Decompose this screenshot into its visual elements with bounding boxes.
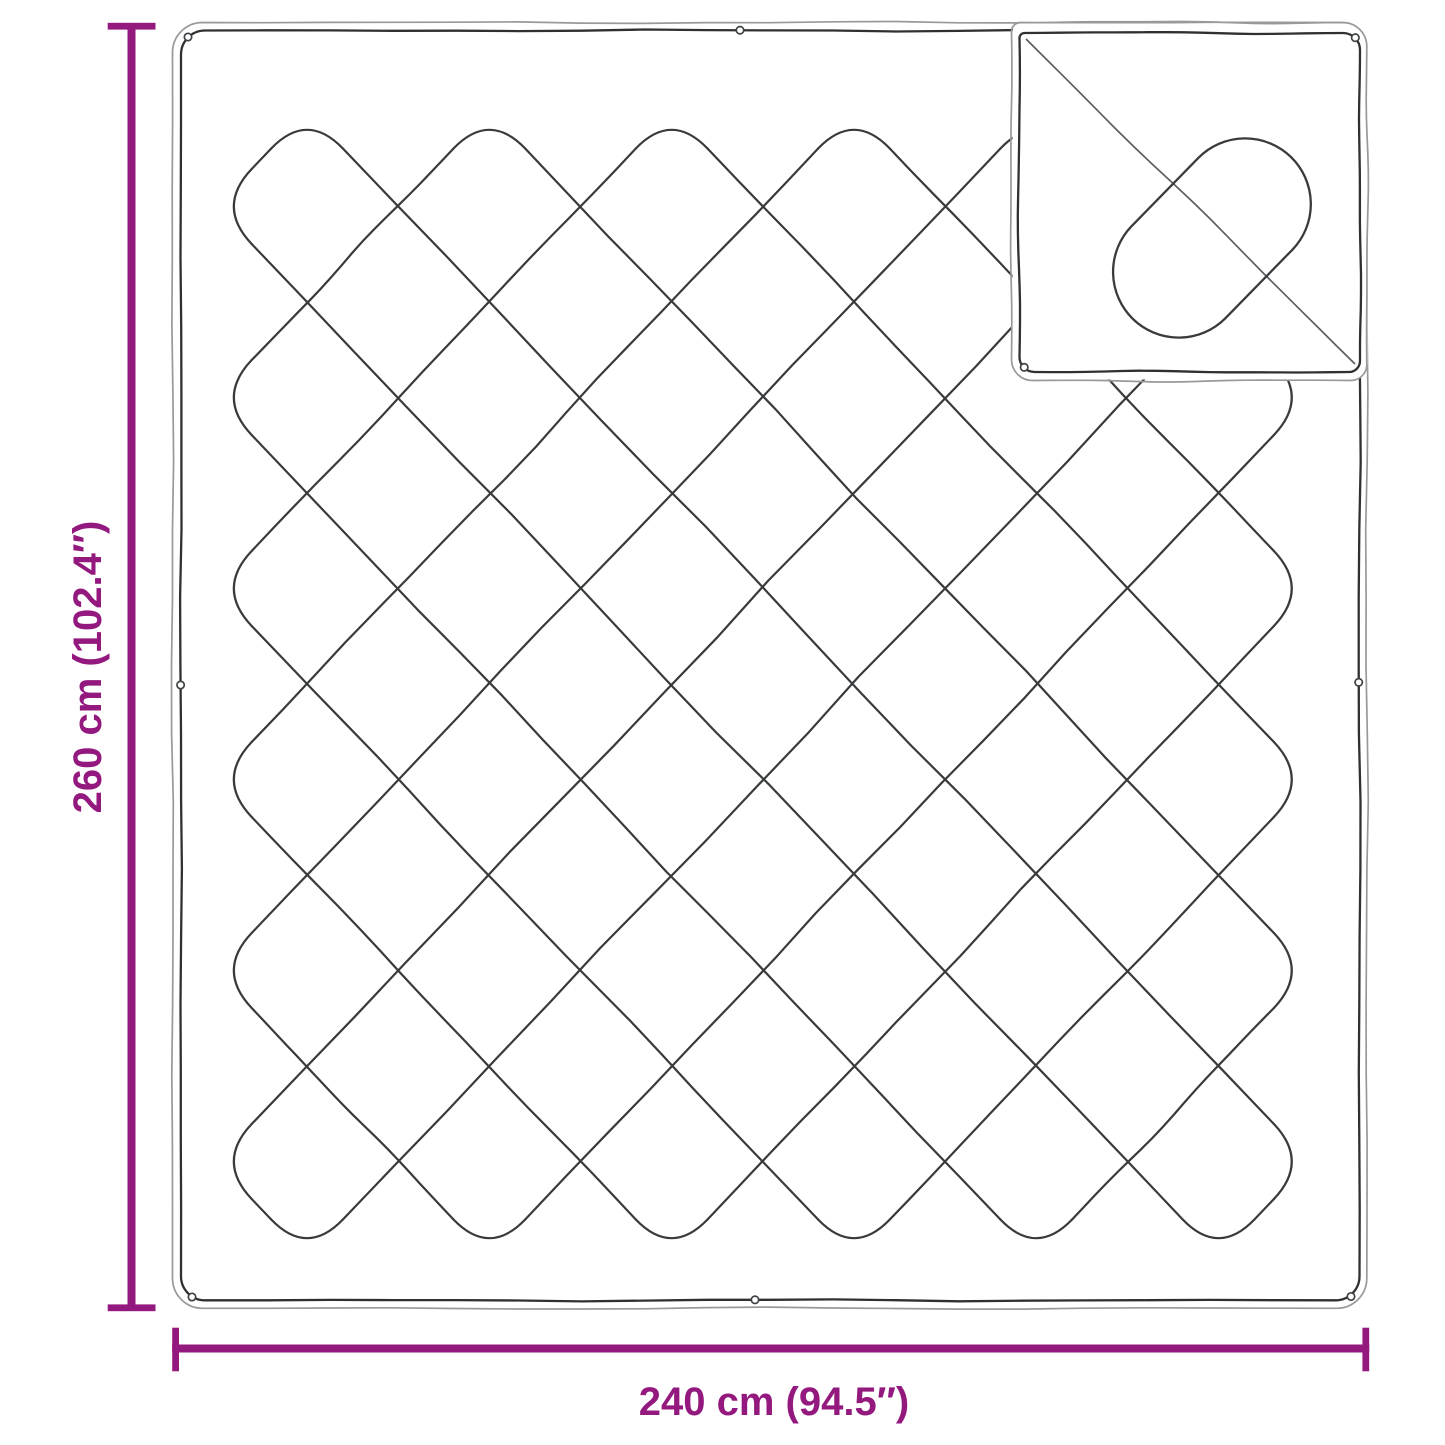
svg-text:240 cm (94.5″): 240 cm (94.5″) <box>639 1380 909 1424</box>
svg-text:260 cm (102.4″): 260 cm (102.4″) <box>66 521 110 814</box>
